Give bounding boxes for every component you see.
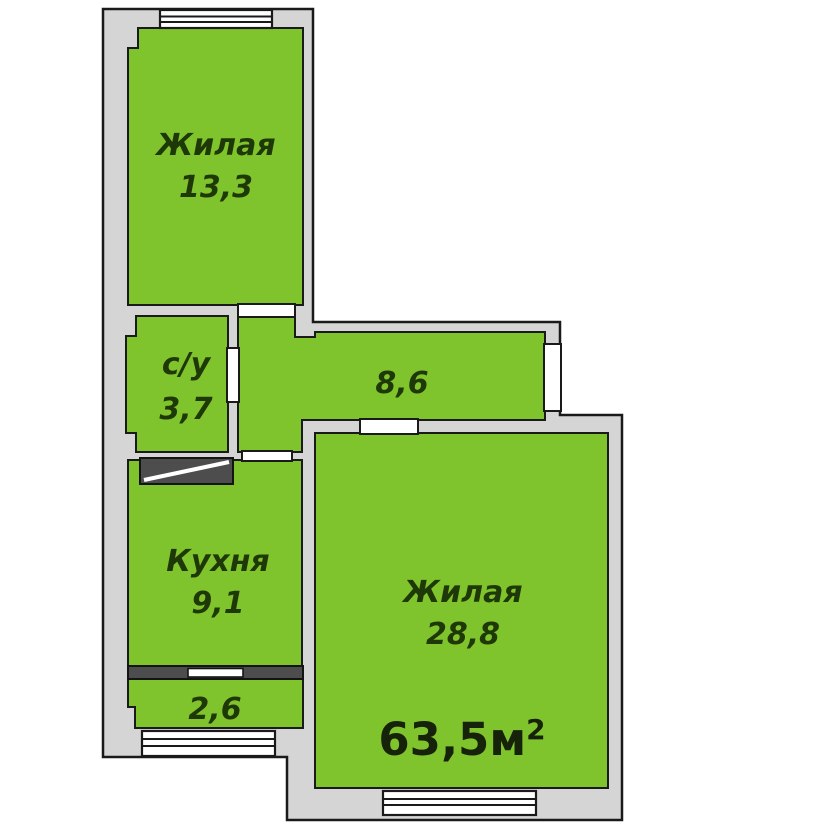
room-hall-area: 8,6 [375,366,428,401]
balcony-door-window [188,669,243,678]
total-area-value: 63,5м [378,713,526,766]
door-opening-living-1 [238,304,295,317]
room-bathroom-area: 3,7 [159,392,212,427]
window-balcony-bottom [142,731,275,756]
door-opening-entrance [544,344,561,411]
room-balcony-area: 2,6 [188,692,241,727]
total-area-label: 63,5м2 [378,713,545,766]
balcony-door-unit [128,666,303,679]
room-living-2-area: 28,8 [426,617,500,652]
room-bathroom [126,316,228,452]
door-opening-living-2 [360,419,418,434]
room-kitchen-area: 9,1 [191,586,244,621]
floor-plan-canvas: Жилая 13,3 с/у 3,7 8,6 Кухня 9,1 Жилая 2… [0,0,830,830]
window-living-1-top [160,10,272,28]
door-opening-kitchen [242,451,292,461]
room-living-2-name: Жилая [401,575,522,610]
window-living-2-bottom [383,791,536,815]
room-bathroom-name: с/у [162,347,212,382]
ventilation-shaft [140,458,233,484]
floor-plan: Жилая 13,3 с/у 3,7 8,6 Кухня 9,1 Жилая 2… [0,0,830,830]
room-living-1-area: 13,3 [179,170,253,205]
room-living-1 [128,28,303,305]
total-area-superscript: 2 [526,713,545,746]
door-opening-bathroom [227,348,239,402]
room-kitchen-name: Кухня [166,544,269,579]
room-living-1-name: Жилая [154,128,275,163]
